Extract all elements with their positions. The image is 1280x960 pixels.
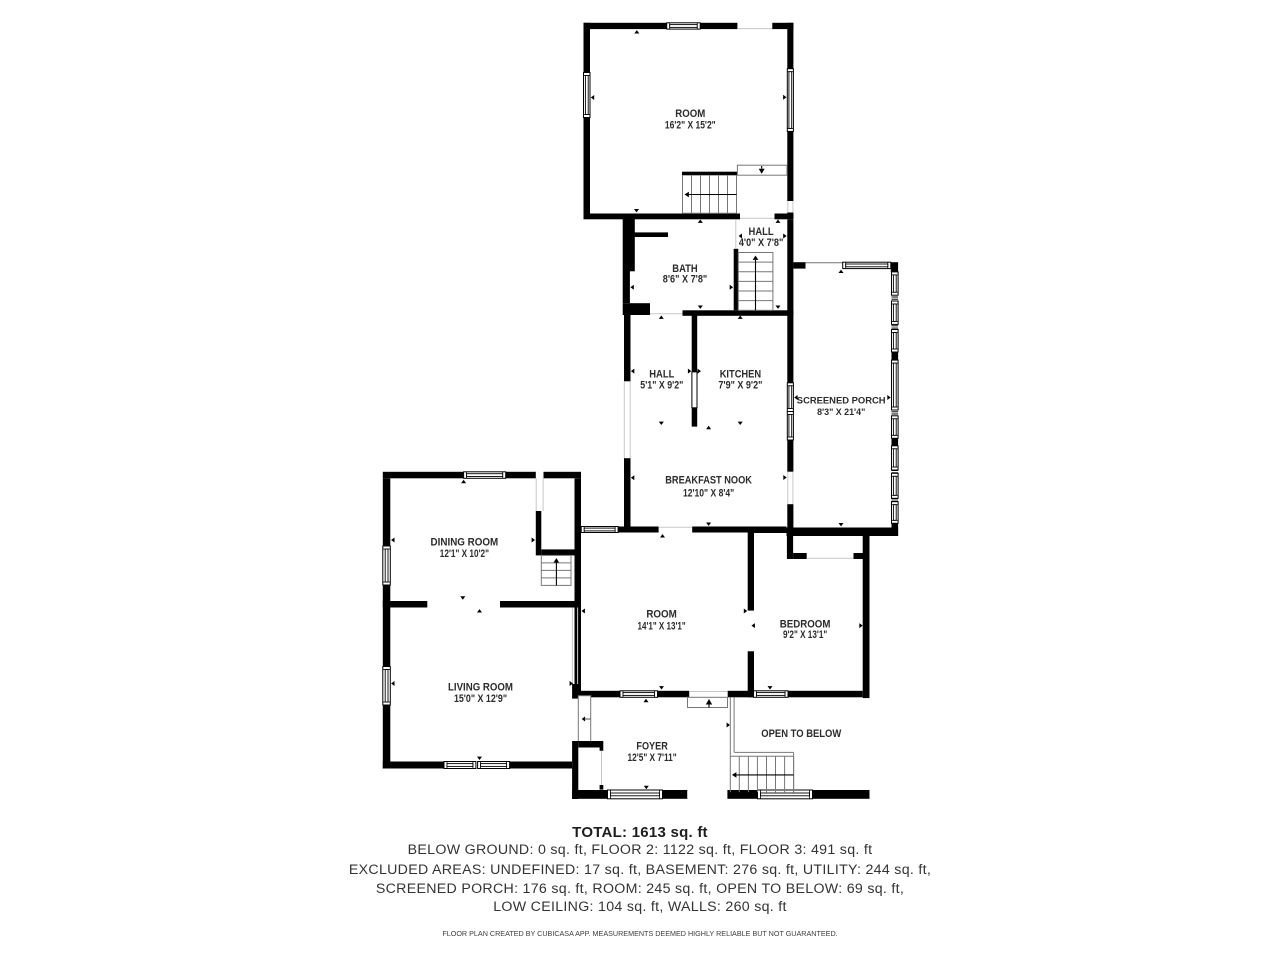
svg-text:9'2" X 13'1": 9'2" X 13'1"	[783, 629, 827, 641]
svg-text:DINING ROOM: DINING ROOM	[431, 537, 499, 549]
svg-text:7'9" X 9'2": 7'9" X 9'2"	[718, 380, 762, 392]
svg-text:8'3" X 21'4": 8'3" X 21'4"	[817, 407, 865, 417]
svg-text:KITCHEN: KITCHEN	[720, 368, 762, 380]
svg-text:SCREENED PORCH: SCREENED PORCH	[797, 396, 886, 406]
svg-text:FOYER: FOYER	[636, 741, 668, 753]
svg-text:4'0" X 7'8": 4'0" X 7'8"	[739, 237, 784, 249]
svg-text:ROOM: ROOM	[646, 608, 677, 620]
svg-text:16'2" X 15'2": 16'2" X 15'2"	[665, 119, 716, 131]
svg-text:BREAKFAST NOOK: BREAKFAST NOOK	[665, 475, 752, 487]
svg-text:12'10" X 8'4": 12'10" X 8'4"	[683, 487, 734, 499]
svg-text:15'0" X 12'9": 15'0" X 12'9"	[454, 693, 507, 705]
svg-text:HALL: HALL	[749, 226, 774, 238]
svg-text:LIVING ROOM: LIVING ROOM	[448, 681, 513, 693]
svg-text:8'6" X 7'8": 8'6" X 7'8"	[663, 274, 708, 286]
svg-text:HALL: HALL	[649, 368, 674, 380]
svg-text:OPEN TO BELOW: OPEN TO BELOW	[761, 728, 842, 740]
svg-text:ROOM: ROOM	[675, 108, 705, 120]
svg-text:14'1" X 13'1": 14'1" X 13'1"	[638, 621, 686, 633]
svg-text:12'1" X 10'2": 12'1" X 10'2"	[440, 548, 489, 560]
svg-text:5'1" X 9'2": 5'1" X 9'2"	[640, 380, 683, 392]
svg-text:12'5" X 7'11": 12'5" X 7'11"	[628, 752, 677, 764]
